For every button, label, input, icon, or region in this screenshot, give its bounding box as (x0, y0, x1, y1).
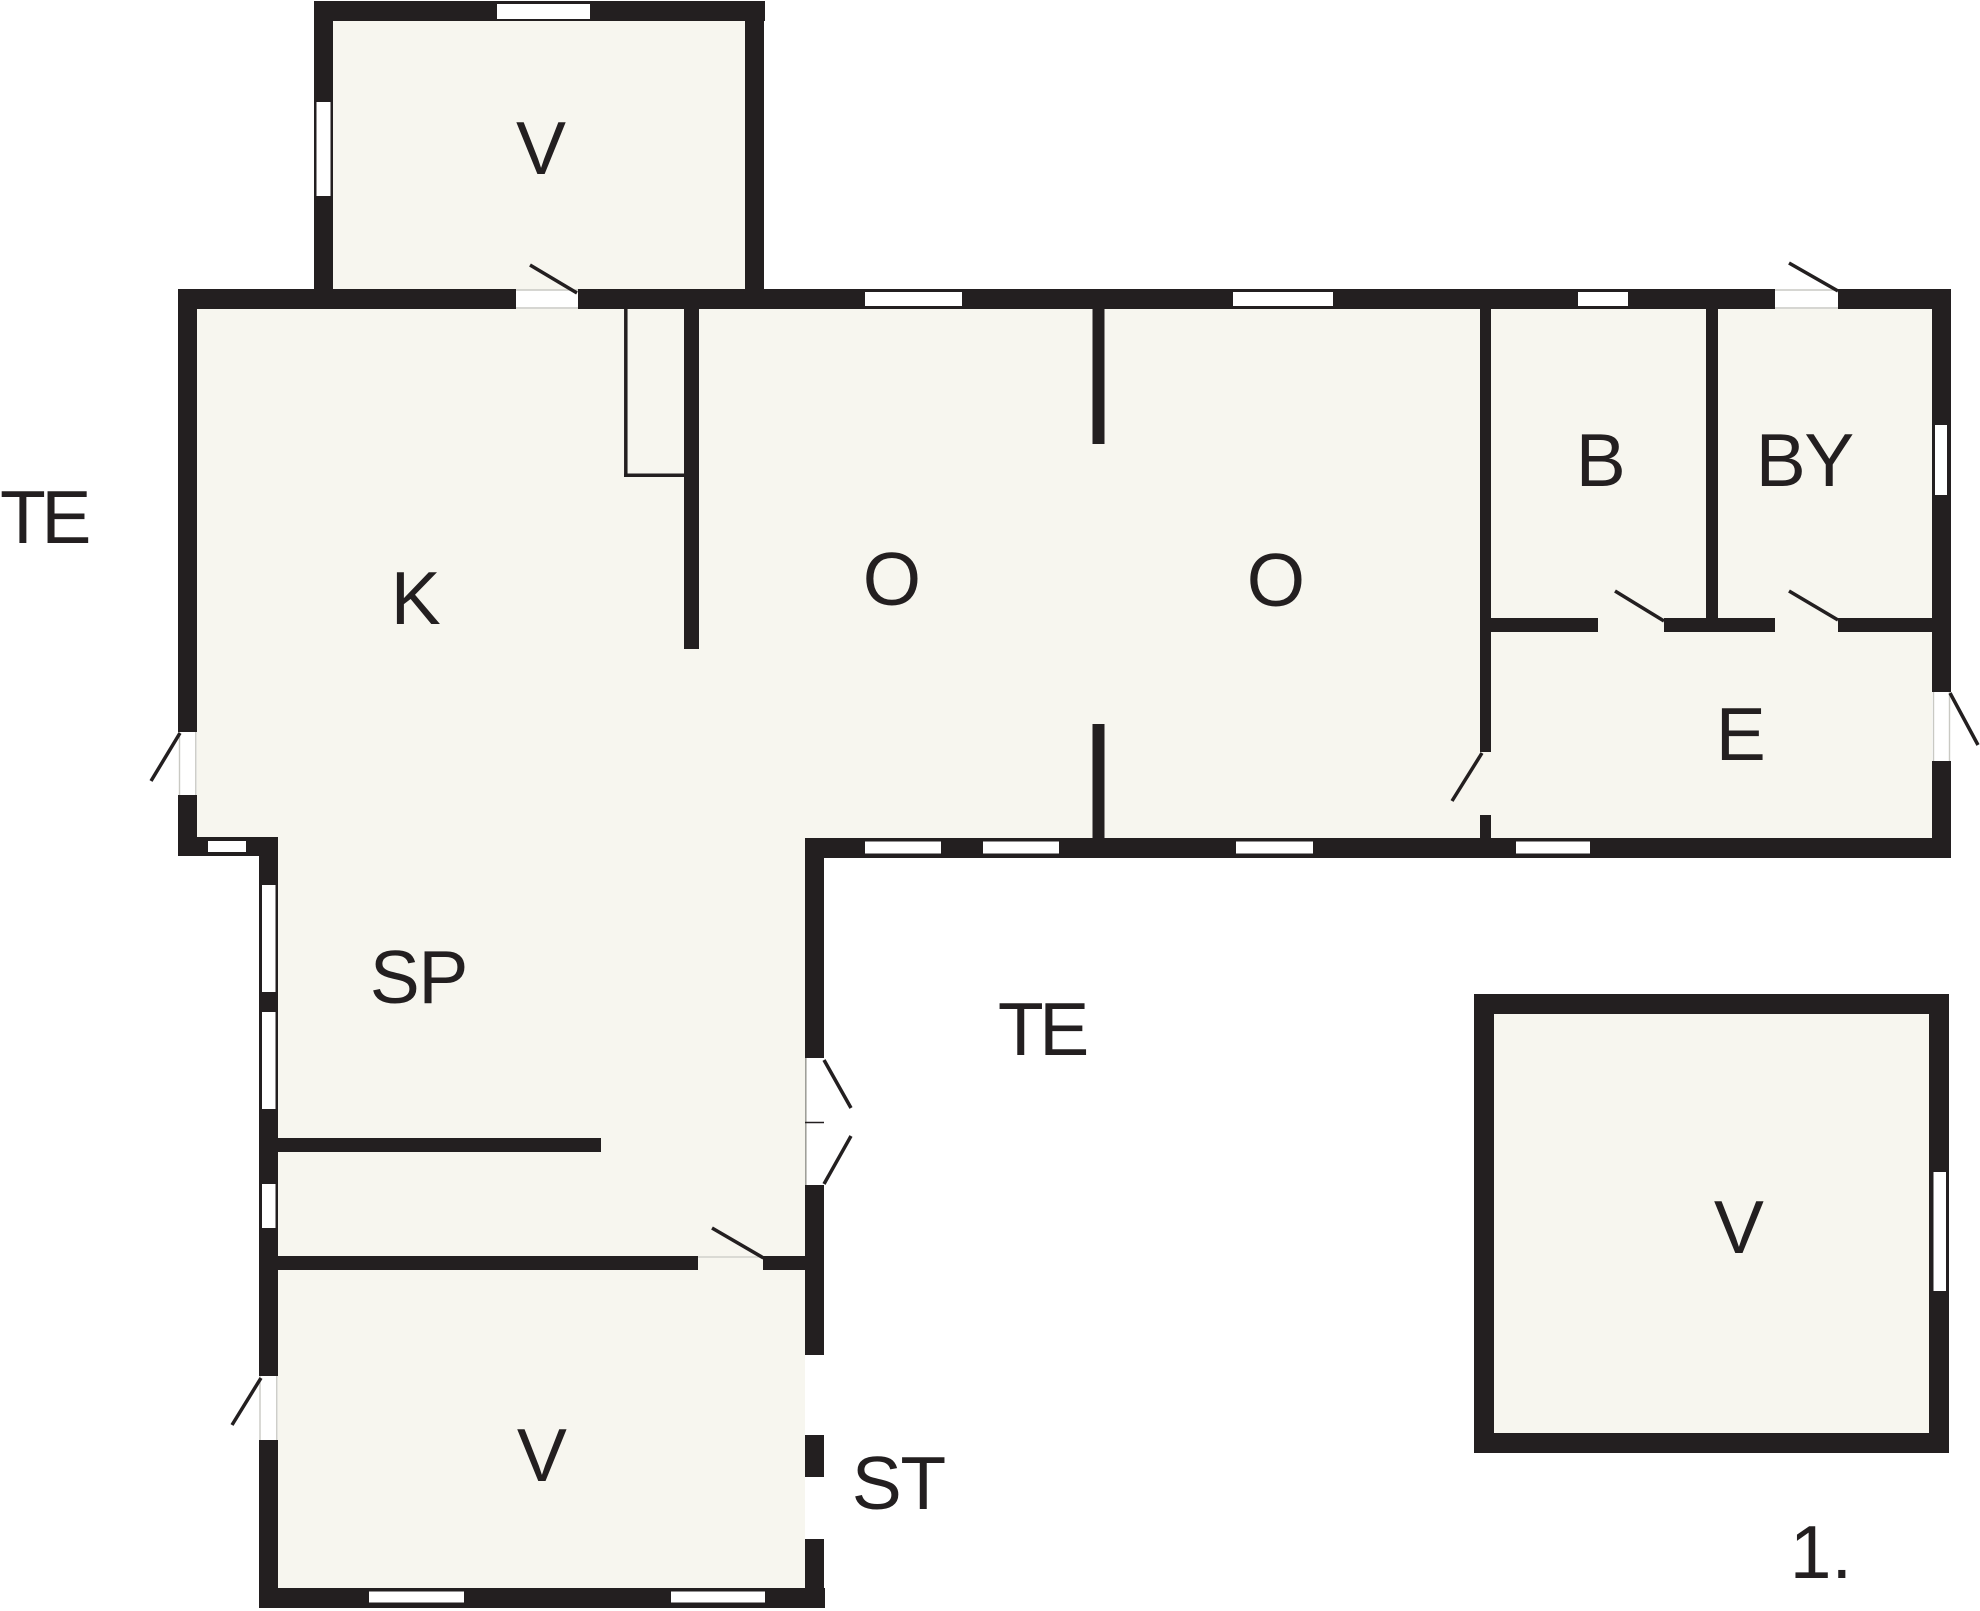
svg-text:K: K (391, 556, 441, 640)
svg-text:E: E (1716, 692, 1766, 776)
svg-text:TE: TE (0, 475, 88, 559)
svg-text:V: V (1714, 1185, 1764, 1269)
svg-text:ST: ST (852, 1441, 946, 1525)
svg-text:V: V (516, 106, 566, 190)
svg-text:BY: BY (1756, 418, 1854, 502)
svg-text:O: O (863, 537, 921, 621)
svg-text:1.: 1. (1790, 1510, 1853, 1594)
svg-text:TE: TE (998, 987, 1086, 1071)
svg-text:B: B (1576, 418, 1626, 502)
svg-text:V: V (517, 1413, 567, 1497)
svg-text:O: O (1247, 538, 1305, 622)
svg-text:SP: SP (370, 935, 467, 1019)
